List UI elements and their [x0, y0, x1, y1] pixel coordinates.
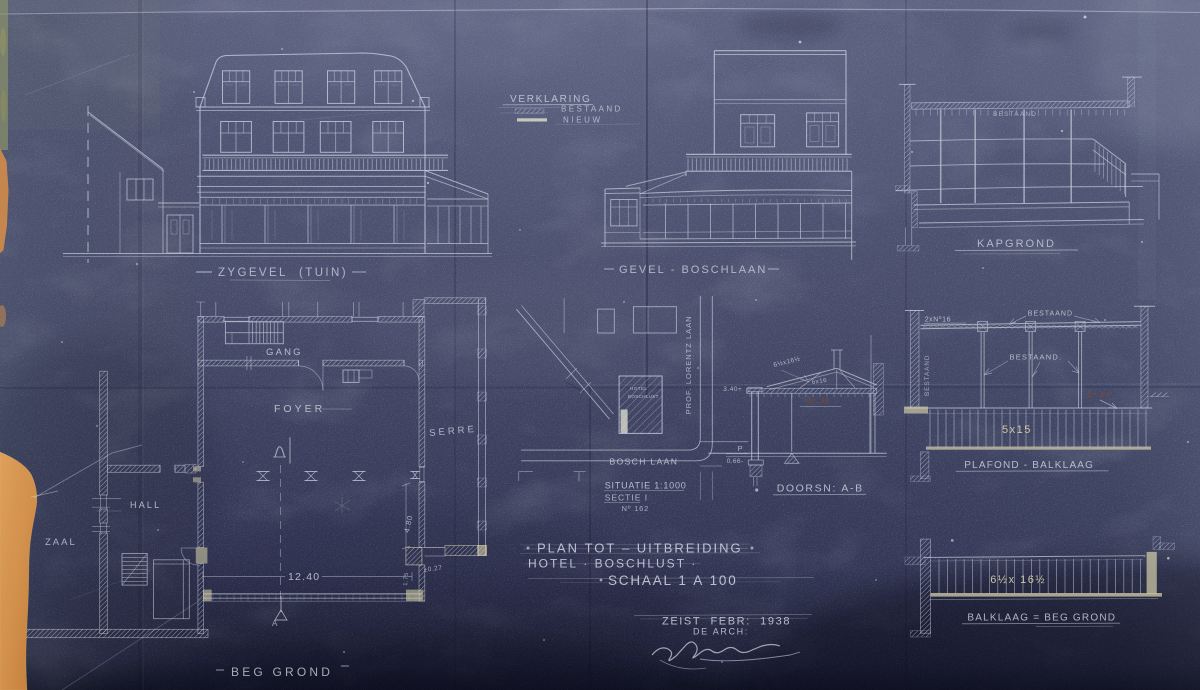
- svg-text:BESTAAND: BESTAAND: [561, 105, 623, 114]
- svg-text:GEVEL - BOSCHLAAN: GEVEL - BOSCHLAAN: [619, 264, 767, 276]
- svg-text:1.75: 1.75: [403, 572, 410, 586]
- svg-text:6½x 16½: 6½x 16½: [990, 574, 1046, 586]
- svg-text:BOSCHLUST: BOSCHLUST: [628, 394, 659, 399]
- svg-text:D² 24: D² 24: [1087, 390, 1110, 399]
- svg-text:ZYGEVEL (TUIN): ZYGEVEL (TUIN): [218, 267, 348, 279]
- svg-text:BESTAAND: BESTAAND: [924, 355, 931, 396]
- svg-text:HOTEL: HOTEL: [630, 386, 647, 391]
- svg-text:BEG GROND: BEG GROND: [231, 665, 333, 679]
- svg-text:2xNº16: 2xNº16: [925, 317, 951, 324]
- svg-text:SCHAAL 1 A 100: SCHAAL 1 A 100: [608, 573, 738, 588]
- svg-text:P: P: [738, 444, 743, 453]
- svg-text:VERKLARING: VERKLARING: [510, 94, 591, 105]
- svg-text:HOTEL · BOSCHLUST ·: HOTEL · BOSCHLUST ·: [528, 557, 697, 571]
- svg-text:BALKLAAG = BEG GROND: BALKLAAG = BEG GROND: [967, 613, 1116, 624]
- svg-text:12.40: 12.40: [288, 571, 320, 583]
- svg-text:PLAN TOT – UITBREIDING: PLAN TOT – UITBREIDING: [537, 541, 743, 556]
- svg-text:BESTAAND.: BESTAAND.: [1010, 353, 1063, 362]
- svg-text:0.66-: 0.66-: [727, 458, 744, 465]
- svg-text:NIEUW: NIEUW: [563, 115, 603, 124]
- svg-text:Gr. 38: Gr. 38: [807, 398, 830, 405]
- svg-text:GANG: GANG: [266, 347, 303, 358]
- svg-text:BOSCH LAAN: BOSCH LAAN: [610, 457, 679, 467]
- svg-text:FOYER: FOYER: [274, 403, 325, 415]
- svg-text:BESTAAND: BESTAAND: [993, 111, 1037, 118]
- svg-text:DE ARCH:: DE ARCH:: [693, 627, 749, 637]
- svg-text:5x15: 5x15: [1002, 424, 1032, 436]
- svg-text:HALL: HALL: [130, 500, 161, 510]
- svg-text:PLAFOND - BALKLAAG: PLAFOND - BALKLAAG: [964, 460, 1094, 471]
- svg-text:DOORSN: A-B: DOORSN: A-B: [777, 483, 864, 495]
- svg-text:A: A: [272, 619, 278, 628]
- svg-text:PROF. LORENTZ LAAN: PROF. LORENTZ LAAN: [684, 315, 693, 414]
- svg-text:SITUATIE 1:1000: SITUATIE 1:1000: [605, 480, 687, 490]
- svg-text:3.40+: 3.40+: [723, 386, 742, 393]
- svg-text:Nº 162: Nº 162: [622, 504, 650, 513]
- svg-text:KAPGROND: KAPGROND: [977, 238, 1056, 250]
- svg-text:SECTIE I: SECTIE I: [605, 492, 648, 502]
- svg-text:ZAAL: ZAAL: [45, 537, 77, 548]
- svg-text:BESTAAND: BESTAAND: [1028, 311, 1073, 318]
